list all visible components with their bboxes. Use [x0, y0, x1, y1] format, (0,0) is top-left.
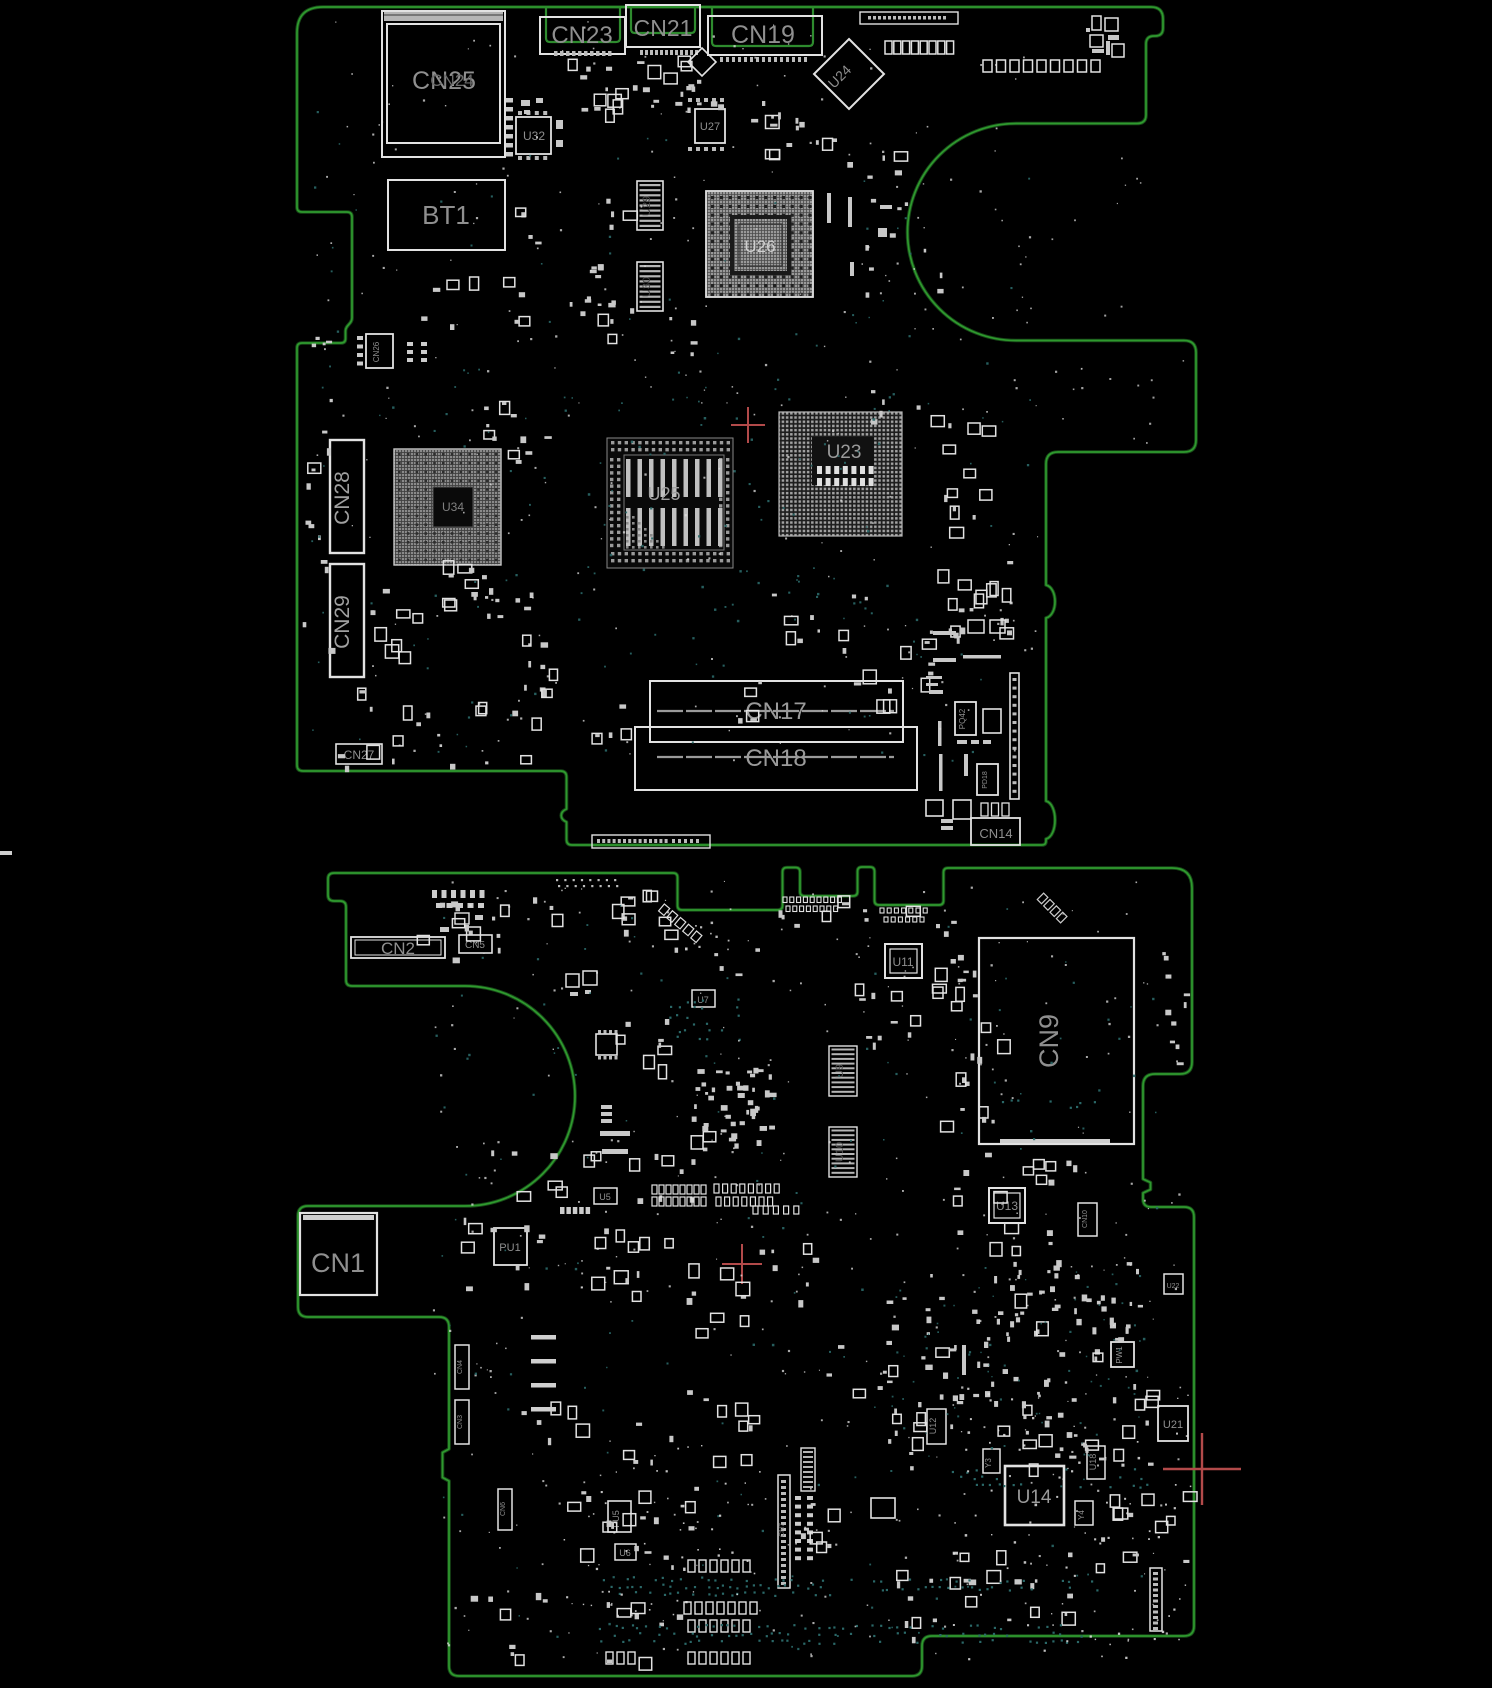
svg-text:U26: U26	[744, 237, 775, 256]
svg-text:CN7: CN7	[779, 1523, 786, 1537]
svg-text:CN2: CN2	[381, 939, 415, 958]
svg-text:CN5: CN5	[465, 940, 485, 951]
svg-text:CN27: CN27	[344, 748, 375, 762]
svg-text:CN23: CN23	[551, 22, 612, 49]
svg-text:CN9: CN9	[1034, 1014, 1064, 1068]
svg-text:U34: U34	[442, 500, 464, 514]
svg-text:U29: U29	[641, 196, 653, 216]
svg-text:CN29: CN29	[331, 595, 354, 649]
svg-text:CN21: CN21	[634, 15, 693, 41]
svg-text:Y4: Y4	[1077, 1510, 1086, 1520]
svg-text:U23: U23	[827, 442, 862, 463]
svg-text:U21: U21	[1163, 1419, 1183, 1431]
svg-text:CN3: CN3	[457, 1415, 464, 1429]
svg-text:U14: U14	[1017, 1487, 1052, 1508]
svg-text:U9: U9	[834, 1064, 846, 1078]
svg-text:U11: U11	[892, 955, 913, 969]
svg-text:BT1: BT1	[422, 200, 470, 230]
svg-text:U27: U27	[700, 121, 720, 133]
svg-text:CN1: CN1	[311, 1248, 365, 1278]
svg-text:U5: U5	[599, 1192, 611, 1202]
svg-text:U30: U30	[641, 277, 653, 297]
svg-text:PW1: PW1	[1115, 1346, 1124, 1364]
svg-text:CN26: CN26	[372, 341, 381, 362]
svg-text:U32: U32	[523, 129, 545, 143]
svg-text:U12: U12	[928, 1418, 938, 1435]
svg-text:U25: U25	[647, 484, 680, 504]
svg-text:CN28: CN28	[331, 471, 354, 525]
svg-text:PD18: PD18	[982, 771, 989, 789]
svg-text:U18: U18	[1088, 1454, 1098, 1471]
svg-text:PU1: PU1	[499, 1242, 520, 1254]
svg-text:U6: U6	[619, 1548, 631, 1558]
svg-text:CN18: CN18	[745, 745, 806, 772]
svg-text:Y3: Y3	[984, 1458, 993, 1468]
svg-text:CN10: CN10	[1082, 1210, 1089, 1228]
svg-text:CN24: CN24	[430, 71, 473, 90]
svg-text:U10: U10	[834, 1142, 846, 1162]
svg-text:CN6: CN6	[500, 1502, 507, 1516]
svg-text:U22: U22	[1167, 1283, 1180, 1290]
svg-text:CN14: CN14	[979, 826, 1012, 841]
svg-text:PQ42: PQ42	[958, 708, 967, 729]
svg-text:CN19: CN19	[731, 21, 795, 49]
svg-text:CN4: CN4	[457, 1360, 464, 1374]
